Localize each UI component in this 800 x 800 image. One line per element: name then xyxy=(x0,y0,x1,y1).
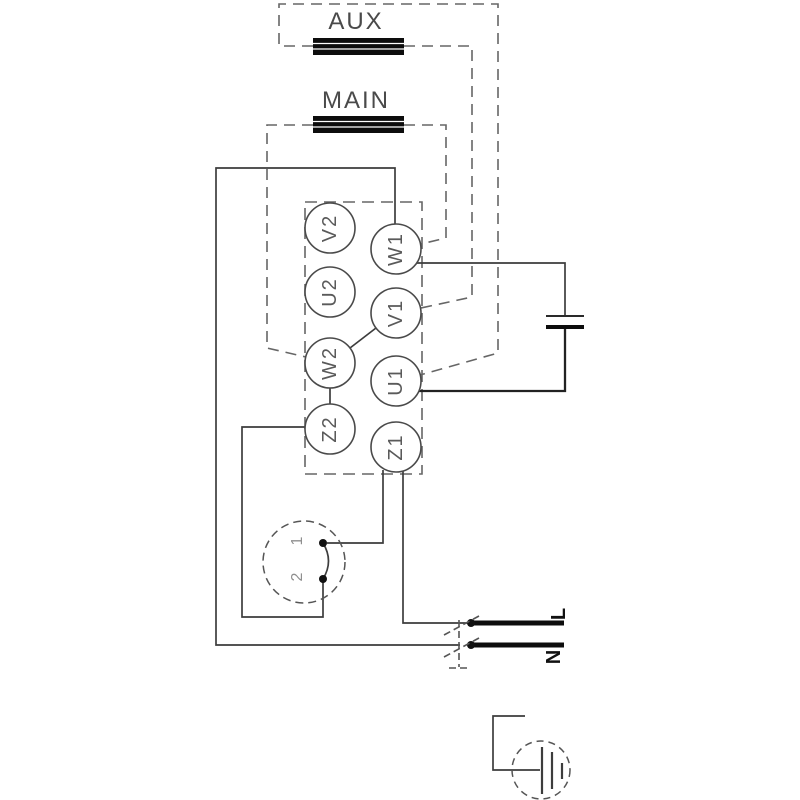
main-winding-label: MAIN xyxy=(322,89,390,113)
wire-capacitor-to-u1 xyxy=(419,328,565,391)
terminal-z1-label: Z1 xyxy=(386,433,406,460)
terminal-w1-label: W1 xyxy=(386,232,406,266)
centrifugal-contact2-label: 2 xyxy=(290,573,306,582)
centrifugal-contact-arc xyxy=(323,543,329,579)
terminal-v1-label: V1 xyxy=(386,299,406,327)
capacitor xyxy=(546,316,584,327)
wire-w1-to-capacitor xyxy=(417,263,565,315)
terminal-v2-label: V2 xyxy=(320,214,340,242)
line-terminal-label: L xyxy=(549,608,569,620)
centrifugal-switch-circle xyxy=(263,521,345,603)
main-right-line xyxy=(404,125,446,244)
line-contact-dot xyxy=(467,619,475,627)
neutral-contact-dot xyxy=(467,641,475,649)
main-left-line xyxy=(267,125,313,357)
contact2-dot xyxy=(319,575,327,583)
aux-coil xyxy=(313,38,404,55)
contact1-dot xyxy=(319,539,327,547)
link-w2-v1 xyxy=(350,328,376,348)
terminal-z2-label: Z2 xyxy=(320,415,340,442)
terminal-u1-label: U1 xyxy=(386,366,406,396)
ground-wire xyxy=(493,716,540,770)
centrifugal-switch xyxy=(263,521,345,603)
aux-winding-label: AUX xyxy=(328,10,383,34)
main-coil xyxy=(313,116,404,133)
centrifugal-contact1-label: 1 xyxy=(290,537,306,546)
terminal-u2-label: U2 xyxy=(320,277,340,307)
wire-z1-to-line-contact xyxy=(403,470,468,623)
schematic-lines xyxy=(0,0,800,800)
neutral-terminal-label: N xyxy=(544,650,564,664)
aux-right-line xyxy=(404,46,472,308)
wire-z1-to-contact1 xyxy=(327,470,383,543)
terminal-w2-label: W2 xyxy=(320,346,340,380)
wiring-diagram: AUX MAIN V2 U2 W2 Z2 W1 V1 U1 Z1 1 2 L N xyxy=(0,0,800,800)
